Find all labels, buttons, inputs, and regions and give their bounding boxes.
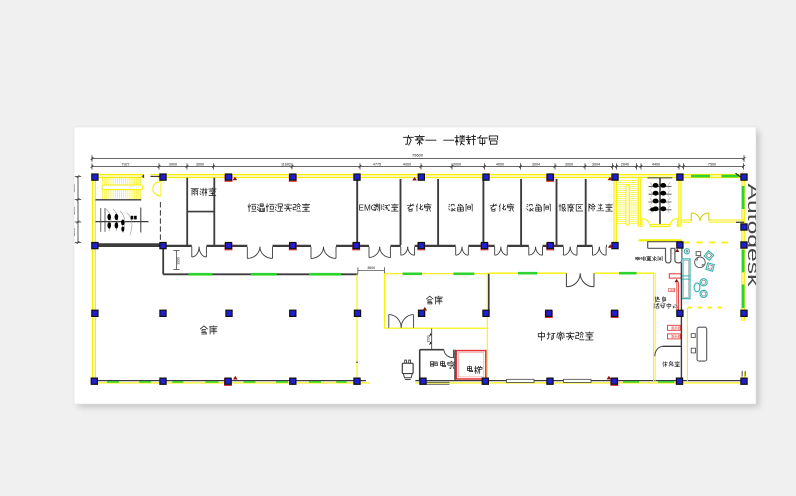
svg-text:3004: 3004: [532, 162, 540, 166]
svg-text:EMC: EMC: [359, 204, 377, 213]
svg-text:3000: 3000: [169, 162, 177, 166]
svg-text:3600: 3600: [367, 266, 375, 270]
svg-text:7500: 7500: [708, 162, 716, 166]
svg-text:7927: 7927: [121, 162, 129, 166]
svg-text:3000: 3000: [196, 162, 204, 166]
svg-text:器材: 器材: [670, 288, 675, 292]
svg-text:4400: 4400: [652, 162, 660, 166]
svg-text:11602: 11602: [281, 162, 291, 166]
svg-text:3004: 3004: [592, 162, 600, 166]
svg-text:3000: 3000: [176, 257, 180, 265]
svg-text:2640: 2640: [621, 162, 629, 166]
svg-text:跑步机: 跑步机: [671, 325, 681, 330]
svg-text:跑步机: 跑步机: [671, 334, 681, 339]
svg-text:75600: 75600: [412, 153, 424, 158]
svg-text:4000: 4000: [403, 162, 411, 166]
svg-text:4775: 4775: [373, 162, 381, 166]
svg-text:3000: 3000: [453, 162, 461, 166]
svg-text:3000: 3000: [565, 162, 573, 166]
svg-text:1500: 1500: [427, 335, 431, 342]
svg-text:4000: 4000: [496, 162, 504, 166]
